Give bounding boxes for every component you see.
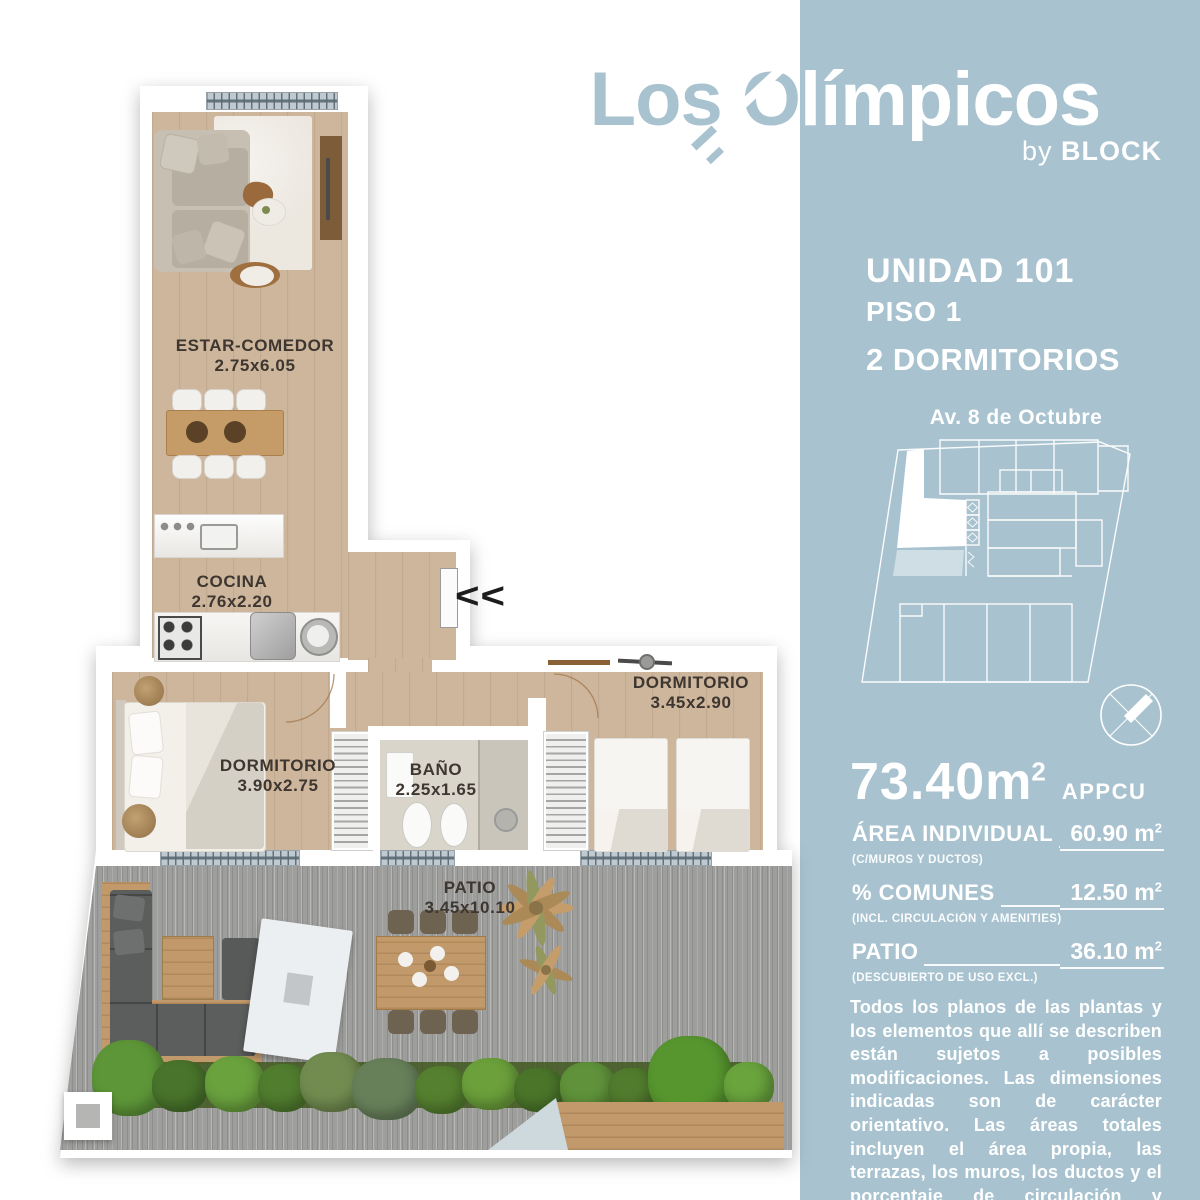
patio-canopy: [243, 918, 353, 1063]
area-stats: ÁREA INDIVIDUAL 60.90 m2 (C/MUROS Y DUCT…: [852, 820, 1164, 997]
stat-patio: PATIO 36.10 m2 (DESCUBIERTO DE USO EXCL.…: [852, 938, 1164, 984]
logo-text-right: límpicos: [800, 62, 1100, 138]
patio-wood-strip: [556, 1102, 784, 1150]
stat-note: (DESCUBIERTO DE USO EXCL.): [852, 972, 1164, 984]
bush: [462, 1058, 520, 1110]
bedrooms-label: 2 DORMITORIOS: [866, 342, 1120, 378]
stat-label: % COMUNES: [852, 880, 995, 906]
floor-plan: <<: [0, 0, 800, 1200]
stat-comunes: % COMUNES 12.50 m2 (INCL. CIRCULACIÓN Y …: [852, 879, 1164, 925]
stat-label: PATIO: [852, 939, 918, 965]
total-area-cert: APPCU: [1062, 779, 1147, 805]
stat-rule: [924, 964, 1060, 966]
patio-chair: [420, 1010, 446, 1034]
legal-disclaimer: Todos los planos de las plantas y los el…: [850, 996, 1162, 1200]
highlighted-unit-patio: [893, 550, 964, 576]
room-label-cocina: COCINA2.76x2.20: [147, 572, 317, 612]
floor-label: PISO 1: [866, 296, 962, 328]
room-label-estar: ESTAR-COMEDOR2.75x6.05: [170, 336, 340, 376]
highlighted-unit: [897, 449, 966, 548]
stat-area-individual: ÁREA INDIVIDUAL 60.90 m2 (C/MUROS Y DUCT…: [852, 820, 1164, 866]
bush: [415, 1066, 469, 1114]
plate: [398, 952, 413, 967]
plate: [412, 972, 427, 987]
patio-fixture-inner: [76, 1104, 100, 1128]
stat-rule: [1001, 905, 1061, 907]
street-label: Av. 8 de Octubre: [836, 406, 1196, 430]
canopy-pole: [283, 972, 313, 1005]
plate: [444, 966, 459, 981]
room-label-bano: BAÑO2.25x1.65: [371, 760, 501, 800]
patio-chair: [452, 1010, 478, 1034]
patio-dining-table: [376, 936, 486, 1010]
logo-byline: by BLOCK: [1022, 136, 1162, 167]
compass-icon: [1096, 680, 1166, 750]
stat-value: 60.90 m2: [1060, 820, 1164, 851]
patio-fixture: [64, 1092, 112, 1140]
flyer-page: UNIDAD 101 PISO 1 2 DORMITORIOS Av. 8 de…: [0, 0, 1200, 1200]
plate: [430, 946, 445, 961]
bush: [205, 1056, 265, 1112]
info-sidebar: UNIDAD 101 PISO 1 2 DORMITORIOS Av. 8 de…: [800, 0, 1200, 1200]
total-area: 73.40 m2 APPCU: [850, 752, 1146, 812]
table-centerpiece: [424, 960, 436, 972]
patio-coffee-table: [162, 936, 214, 1000]
stat-value: 36.10 m2: [1060, 938, 1164, 969]
total-area-value: 73.40: [850, 752, 985, 812]
room-label-dormitorio-1: DORMITORIO3.90x2.75: [193, 756, 363, 796]
stat-note: (C/MUROS Y DUCTOS): [852, 854, 1164, 866]
room-label-patio: PATIO3.45x10.10: [385, 878, 555, 918]
stat-label: ÁREA INDIVIDUAL: [852, 821, 1053, 847]
bush: [152, 1060, 208, 1112]
patio-pillow: [112, 894, 145, 922]
room-label-dormitorio-2: DORMITORIO3.45x2.90: [606, 673, 776, 713]
bush: [352, 1058, 422, 1120]
total-area-unit: m2: [985, 752, 1046, 812]
stat-note: (INCL. CIRCULACIÓN Y AMENITIES): [852, 913, 1164, 925]
patio-pillow: [113, 928, 145, 955]
patio-chair: [388, 1010, 414, 1034]
unit-title: UNIDAD 101: [866, 252, 1074, 291]
stat-value: 12.50 m2: [1060, 879, 1164, 910]
